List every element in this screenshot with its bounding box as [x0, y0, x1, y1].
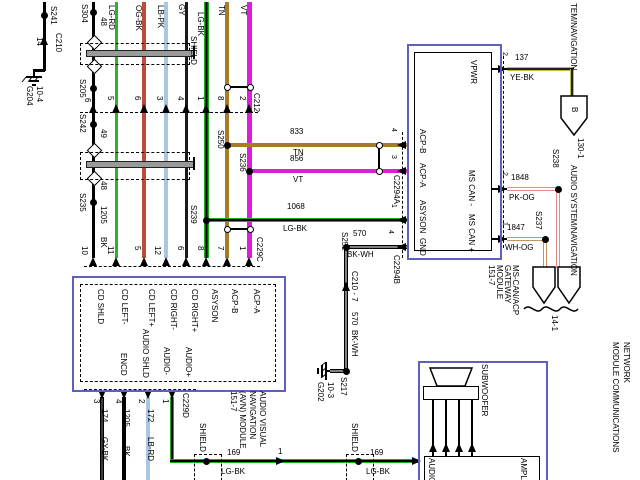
ground-icon-g202 — [318, 362, 330, 380]
pin-label: CD SHLD — [96, 289, 104, 324]
pin-number: 5 — [133, 246, 141, 250]
wire-color-label: LG-BK — [196, 12, 204, 36]
splice-label: S235 — [78, 193, 86, 212]
pin-label: ACP-A — [418, 163, 426, 187]
wire-color-label: LG-RD — [107, 5, 115, 30]
network-label: NETWORK — [622, 342, 630, 383]
circuit-number: 856 — [290, 155, 303, 163]
pin-label: MS CAN - — [467, 170, 475, 206]
pin-number: 7 — [216, 246, 224, 250]
pin-number: 1 — [501, 222, 508, 226]
speaker-icon — [430, 368, 472, 386]
pin-label: ACP-A — [252, 289, 260, 313]
wire-color-label: GY — [177, 4, 185, 16]
module-name: AUDIO VISUAL — [258, 391, 266, 447]
module-name: NAVIGATION — [248, 391, 256, 439]
wire-color-label: BK-WH — [347, 251, 374, 259]
module-name: (AVN) MODULE — [238, 391, 246, 449]
circuit-number: 833 — [290, 128, 303, 136]
ground-label: G204 — [25, 86, 33, 106]
wire-color-label: LG-BK — [283, 225, 307, 233]
wire-color-label: BK-WH — [350, 330, 358, 357]
wire-color-label: BK — [122, 446, 130, 457]
circuit-number: 570 — [353, 230, 366, 238]
shield-label: SHIELD — [189, 36, 197, 65]
pin-label: ASYSON — [418, 200, 426, 233]
wire-color-label: PK-OG — [509, 194, 535, 202]
pin-number: 10 — [80, 246, 88, 255]
splice-label: S239 — [189, 205, 197, 224]
pin-number: 8 — [216, 96, 224, 100]
pin-number: 3 — [390, 155, 397, 159]
module-name: MS-CAN/ACP — [511, 265, 519, 315]
pin-number: 2 — [501, 52, 508, 56]
pin-number: 6 — [133, 96, 141, 100]
circuit-number: 1848 — [511, 174, 529, 182]
terminal-label: B — [570, 107, 578, 112]
wire-color-label: LG-BK — [366, 468, 390, 476]
module-name: GATEWAY — [503, 265, 511, 304]
page-ref: 10-4 — [35, 86, 43, 102]
pin-number: 2 — [238, 96, 246, 100]
shapes-layer — [0, 0, 640, 480]
shield-label: SHIELD — [198, 423, 206, 452]
pin-number: 8 — [196, 246, 204, 250]
circuit-number: 48 — [99, 181, 107, 190]
wire-color-label: GY-BK — [100, 437, 108, 461]
splice-label: S237 — [534, 211, 542, 230]
pin-number: 2 — [501, 172, 508, 176]
module-name: AMPL — [519, 458, 527, 480]
pin-number: 1 — [278, 448, 282, 456]
splice-label: S238 — [551, 149, 559, 168]
page-ref: 14-1 — [550, 315, 558, 331]
wire-color-label: VT — [239, 5, 247, 15]
wire-color-label: LB-PK — [156, 5, 164, 28]
circuit-number: 169 — [227, 449, 240, 457]
terminal-b — [561, 96, 587, 135]
pin-number: 2 — [137, 399, 145, 403]
splice-label: S250 — [216, 130, 224, 149]
pin-label: ACP-B — [230, 289, 238, 313]
circuit-number: 1205 — [122, 409, 130, 427]
pin-number: 6 — [83, 98, 91, 102]
pin-label: MS CAN + — [467, 214, 475, 252]
ground-label: G202 — [316, 382, 324, 402]
circuit-number: 48 — [99, 17, 107, 26]
connector-label: C210 - 7 — [350, 271, 358, 302]
pin-number: 5 — [106, 96, 114, 100]
splice-label: S241 — [49, 6, 57, 25]
pin-label: ASYSON — [210, 289, 218, 322]
splice-label: S236 — [238, 153, 246, 172]
wire-color-label: YE-BK — [510, 74, 534, 82]
wire-color-label: TN — [217, 5, 225, 16]
connector-label: C212 — [252, 93, 260, 112]
pin-label: CD LEFT- — [120, 289, 128, 325]
wire-color-label: LG-BK — [221, 468, 245, 476]
splice-label: S252 — [340, 232, 348, 251]
module-name: MODULE — [495, 265, 503, 299]
ground-icon-g204 — [22, 71, 42, 85]
pin-number: 1 — [390, 204, 397, 208]
pin-number: 1 — [196, 96, 204, 100]
pin-label: CD RIGHT+ — [190, 289, 198, 332]
circuit-number: 49 — [99, 129, 107, 138]
module-name: SUBWOOFER — [480, 364, 488, 416]
circuit-number: 570 — [350, 312, 358, 325]
page-ref: 130-1 — [576, 138, 584, 158]
wiring-diagram: S241C21014G20410-4S30448S2056S2424948S23… — [0, 0, 640, 480]
circuit-number: 169 — [370, 449, 383, 457]
circuit-number: 172 — [146, 409, 154, 422]
circuit-number: 1068 — [287, 203, 305, 211]
circuit-number: 174 — [100, 409, 108, 422]
connector-label: C210 — [54, 33, 62, 52]
pin-number: 4 — [387, 230, 394, 234]
pin-label: AUDIO SHLD — [141, 329, 149, 378]
cable-break-icon — [524, 307, 578, 311]
splice-label: S242 — [78, 114, 86, 133]
circuit-number: 137 — [515, 54, 528, 62]
splice-label: S304 — [80, 4, 88, 23]
connector-label: C229D — [181, 393, 189, 418]
network-label: AUDIO SYSTEM/NAVIGATION — [569, 165, 577, 276]
connector-label: C2294A — [392, 175, 400, 204]
network-label: TEM/NAVIGATION — [569, 3, 577, 70]
pin-number: 6 — [176, 246, 184, 250]
pin-label: GND — [418, 238, 426, 256]
splice-label: S217 — [339, 377, 347, 396]
pin-number: 1 — [238, 246, 246, 250]
splice-label: S205 — [78, 79, 86, 98]
pin-label: AUDIO- — [162, 347, 170, 375]
circuit-number: 1205 — [99, 206, 107, 224]
pin-number: 4 — [114, 399, 122, 403]
pin-number: 4 — [390, 128, 397, 132]
pin-label: AUDIO+ — [427, 458, 435, 480]
page-ref: 10-3 — [326, 382, 334, 398]
pin-label: ACP-B — [418, 129, 426, 153]
pin-label: CD LEFT+ — [147, 289, 155, 327]
connector-label: C2294B — [392, 255, 400, 284]
pin-number: 14 — [35, 37, 43, 46]
circuit-number: 1847 — [507, 224, 525, 232]
wire-color-label: OG-BK — [134, 5, 142, 31]
page-ref: 151-7 — [487, 265, 495, 285]
network-label: MODULE COMMUNICATIONS — [611, 342, 619, 453]
pin-label: ENCD — [119, 353, 127, 376]
page-ref: 151-7 — [229, 391, 237, 411]
pin-number: 3 — [155, 96, 163, 100]
wire-color-label: LB-RD — [146, 437, 154, 461]
pin-number: 11 — [106, 246, 114, 254]
shield-label: SHIELD — [350, 423, 358, 452]
pin-number: 12 — [153, 246, 161, 255]
wire-color-label: WH-OG — [505, 244, 533, 252]
pin-number: 4 — [176, 96, 184, 100]
pin-label: VPWR — [469, 60, 477, 84]
pin-label: CD RIGHT- — [169, 289, 177, 330]
pin-number: 1 — [161, 399, 169, 403]
wire-color-label: VT — [293, 176, 303, 184]
pin-label: AUDIO+ — [184, 347, 192, 377]
connector-label: C229C — [255, 237, 263, 262]
pin-number: 3 — [92, 399, 100, 403]
